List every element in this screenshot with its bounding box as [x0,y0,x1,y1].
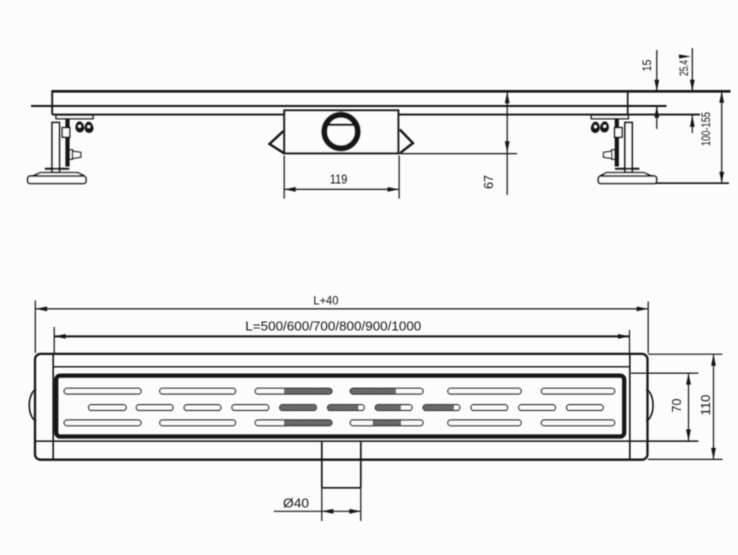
svg-text:67: 67 [482,175,496,189]
svg-text:110: 110 [699,394,713,415]
svg-text:15: 15 [640,59,654,71]
svg-text:L=500/600/700/800/900/1000: L=500/600/700/800/900/1000 [245,319,421,334]
svg-text:100-155: 100-155 [699,112,713,146]
svg-text:70: 70 [670,398,684,412]
svg-text:L+40: L+40 [313,294,338,308]
svg-text:Ø40: Ø40 [283,496,309,511]
svg-text:25.4: 25.4 [677,60,691,76]
svg-text:119: 119 [330,172,348,187]
